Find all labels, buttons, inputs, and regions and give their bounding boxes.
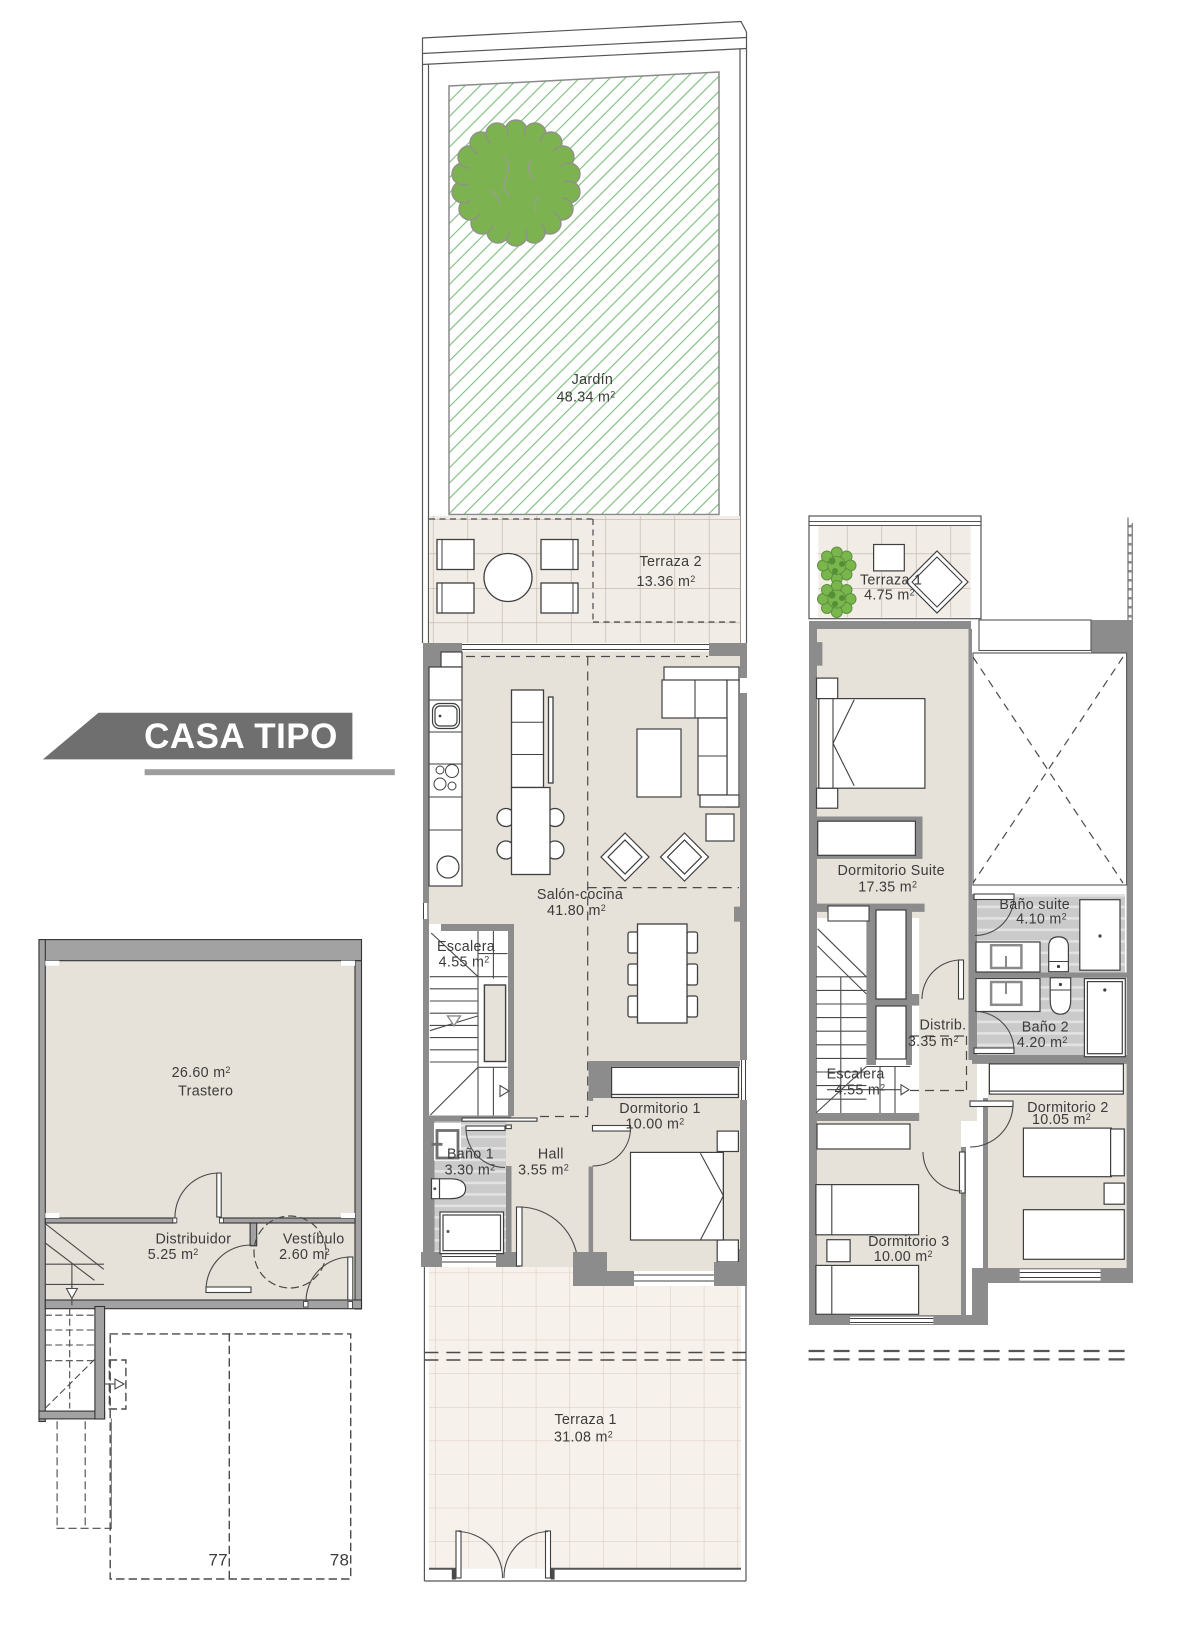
svg-text:Dormitorio 3: Dormitorio 3: [868, 1234, 949, 1250]
svg-text:13.36 m2: 13.36 m2: [636, 574, 695, 590]
svg-text:Escalera: Escalera: [827, 1066, 885, 1082]
svg-text:Baño 2: Baño 2: [1022, 1020, 1069, 1036]
svg-text:4.75 m2: 4.75 m2: [864, 588, 915, 604]
svg-text:10.05 m2: 10.05 m2: [1032, 1112, 1091, 1128]
svg-text:78: 78: [330, 1550, 350, 1569]
svg-text:4.55 m2: 4.55 m2: [835, 1082, 886, 1098]
svg-text:Salón-cocina: Salón-cocina: [537, 887, 623, 903]
svg-text:10.00 m2: 10.00 m2: [625, 1116, 684, 1132]
svg-text:Dormitorio Suite: Dormitorio Suite: [838, 863, 945, 879]
svg-text:Escalera: Escalera: [437, 939, 495, 955]
svg-text:31.08 m2: 31.08 m2: [554, 1429, 613, 1445]
svg-text:Vestíbulo: Vestíbulo: [283, 1231, 345, 1247]
svg-text:10.00 m2: 10.00 m2: [874, 1249, 933, 1265]
svg-text:Distrib.: Distrib.: [920, 1018, 967, 1034]
svg-text:Distribuidor: Distribuidor: [155, 1231, 231, 1247]
svg-text:Hall: Hall: [538, 1147, 564, 1163]
svg-text:CASA TIPO: CASA TIPO: [144, 717, 338, 756]
svg-text:Terraza 2: Terraza 2: [640, 554, 702, 570]
svg-text:2.60 m2: 2.60 m2: [279, 1247, 330, 1263]
svg-text:3.35 m2: 3.35 m2: [908, 1034, 959, 1050]
svg-text:Dormitorio 1: Dormitorio 1: [619, 1101, 700, 1117]
svg-text:4.20 m2: 4.20 m2: [1017, 1035, 1068, 1051]
svg-text:Trastero: Trastero: [178, 1084, 233, 1100]
svg-text:48.34 m2: 48.34 m2: [556, 390, 615, 406]
svg-text:4.55 m2: 4.55 m2: [439, 955, 490, 971]
svg-text:3.55 m2: 3.55 m2: [518, 1163, 569, 1179]
svg-text:Terraza 1: Terraza 1: [860, 573, 922, 589]
svg-text:3.30 m2: 3.30 m2: [445, 1163, 496, 1179]
svg-text:Terraza 1: Terraza 1: [554, 1412, 616, 1428]
svg-text:77: 77: [208, 1550, 228, 1569]
svg-text:26.60 m2: 26.60 m2: [172, 1065, 231, 1081]
svg-text:41.80 m2: 41.80 m2: [547, 903, 606, 919]
svg-text:Baño 1: Baño 1: [447, 1147, 494, 1163]
svg-text:4.10 m2: 4.10 m2: [1016, 911, 1067, 927]
svg-text:Jardín: Jardín: [572, 372, 614, 388]
svg-text:17.35 m2: 17.35 m2: [858, 879, 917, 895]
svg-text:5.25 m2: 5.25 m2: [148, 1247, 199, 1263]
